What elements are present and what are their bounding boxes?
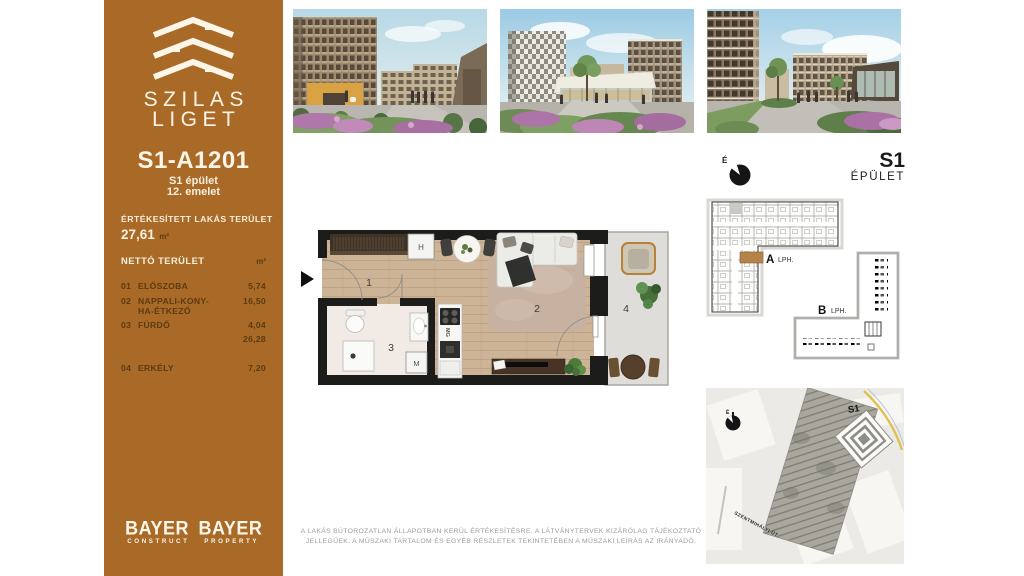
unit-floor: 12. emelet [104,187,283,198]
room-num [121,334,138,344]
site-map: S1 É SZENTMIHÁLYI ÚT [706,388,904,564]
room-num: 03 [121,320,138,330]
bayer-construct-logo: BAYER CONSTRUCT [125,519,190,545]
table-row: 02 NAPPALI-KONY- HA-ÉTKEZŐ 16,50 [121,296,266,316]
room-name: NAPPALI-KONY- HA-ÉTKEZŐ [138,296,243,316]
entry-arrow [301,271,314,287]
core-b-label: B [818,305,826,317]
table-row-subtotal: 26,28 [121,334,266,344]
elevator-core [730,203,742,214]
washer-label: M [413,359,419,368]
floor-plate-diagram: A LPH. B LPH. [706,194,906,378]
net-area-label: NETTÓ TERÜLET [121,255,204,266]
render-photo-1 [293,9,487,133]
building-title-sub: ÉPÜLET [828,171,905,183]
render-photo-2 [500,9,694,133]
bayer-name: BAYER [198,518,262,537]
building-title-main: S1 [828,150,905,171]
core-a-sub: LPH. [778,257,794,264]
disclaimer: A LAKÁS BÚTOROZATLAN ÁLLAPOTBAN KERÜL ÉR… [294,527,708,547]
table-row: 03 FÜRDŐ 4,04 [121,320,266,330]
szilas-liget-logo [145,16,242,82]
bayer-property-logo: BAYER PROPERTY [198,519,262,545]
room-area: 5,74 [248,281,266,291]
room-name: ELŐSZOBA [138,281,248,291]
table-row: 01 ELŐSZOBA 5,74 [121,281,266,291]
sold-area-number: 27,61 [121,227,155,242]
room-area: 4,04 [248,320,266,330]
sold-area-unit: m² [159,232,169,241]
room-area: 7,20 [248,363,266,373]
sold-area-label: ÉRTÉKESÍTETT LAKÁS TERÜLET [121,214,273,224]
bayer-sub: PROPERTY [198,538,262,545]
window [584,245,594,276]
disclaimer-line-2: JELLEGŰEK. A MŰSZAKI TARTALOM ÉS EGYÉB R… [294,537,708,547]
room-num: 02 [121,296,138,316]
sold-area-value: 27,61 m² [121,226,169,244]
disclaimer-line-1: A LAKÁS BÚTOROZATLAN ÁLLAPOTBAN KERÜL ÉR… [294,527,708,537]
room-num: 01 [121,281,138,291]
building-title: S1 ÉPÜLET [828,150,905,183]
brand-line-2: LIGET [104,109,283,130]
sidebar: SZILAS LIGET S1-A1201 S1 épület 12. emel… [104,0,283,576]
room-1-number: 1 [366,277,372,289]
room-area: 16,50 [243,296,266,316]
tv-console [492,359,565,374]
room-area: 26,28 [243,334,266,344]
room-name: ERKÉLY [138,363,248,373]
site-s1-label: S1 [847,403,861,416]
room-4-number: 4 [623,303,629,315]
core-b-sub: LPH. [831,308,847,315]
north-label: É [722,156,728,165]
bayer-sub: CONSTRUCT [125,538,190,545]
unit-highlight [740,252,763,263]
table-row: 04 ERKÉLY 7,20 [121,363,266,373]
room-table: 01 ELŐSZOBA 5,74 02 NAPPALI-KONY- HA-ÉTK… [121,281,266,373]
dishwasher-label: MG [444,328,450,337]
balcony-door-leaf [593,316,598,337]
bayer-name: BAYER [125,518,190,537]
room-num: 04 [121,363,138,373]
room-2-number: 2 [534,303,540,315]
net-area-unit: m² [256,257,266,266]
north-compass: É [720,153,756,189]
apartment-datasheet-page: SZILAS LIGET S1-A1201 S1 épület 12. emel… [0,0,1024,576]
developer-logos: BAYER CONSTRUCT BAYER PROPERTY [104,519,283,545]
render-photo-3 [707,9,901,133]
net-area-header: NETTÓ TERÜLET m² [121,255,266,266]
room-3-number: 3 [388,342,394,354]
kitchen: MG [438,304,462,378]
apartment-floor-plan: H MG [296,226,680,392]
room-name: FÜRDŐ [138,320,248,330]
unit-id: S1-A1201 [104,147,283,175]
brand-line-1: SZILAS [104,89,283,110]
room-name [138,334,243,344]
core-a-label: A [766,254,774,266]
closet-label: H [418,243,424,252]
